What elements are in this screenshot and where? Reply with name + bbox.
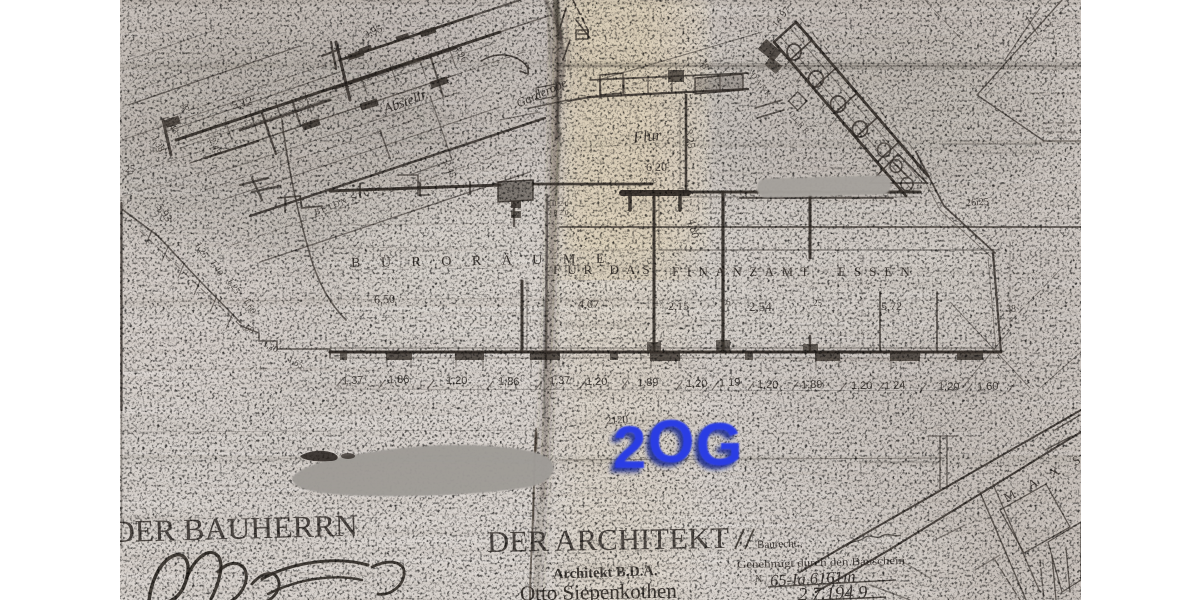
svg-text:2OG: 2OG bbox=[613, 408, 744, 481]
